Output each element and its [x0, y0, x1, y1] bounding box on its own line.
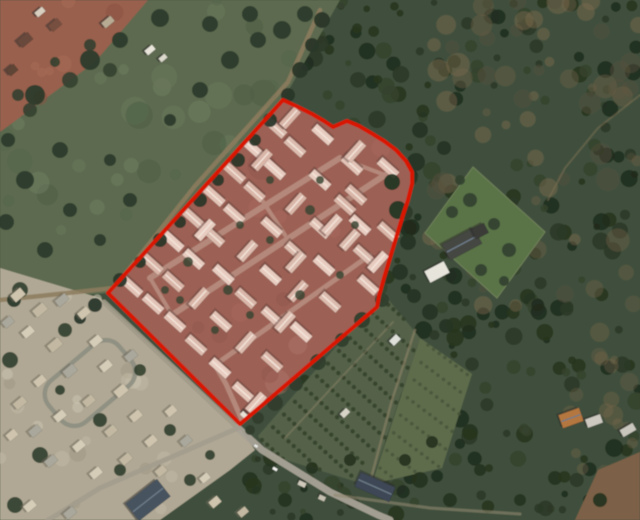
satellite-screenshot [0, 0, 640, 520]
map-scene [0, 0, 640, 520]
satellite-map [0, 0, 640, 520]
